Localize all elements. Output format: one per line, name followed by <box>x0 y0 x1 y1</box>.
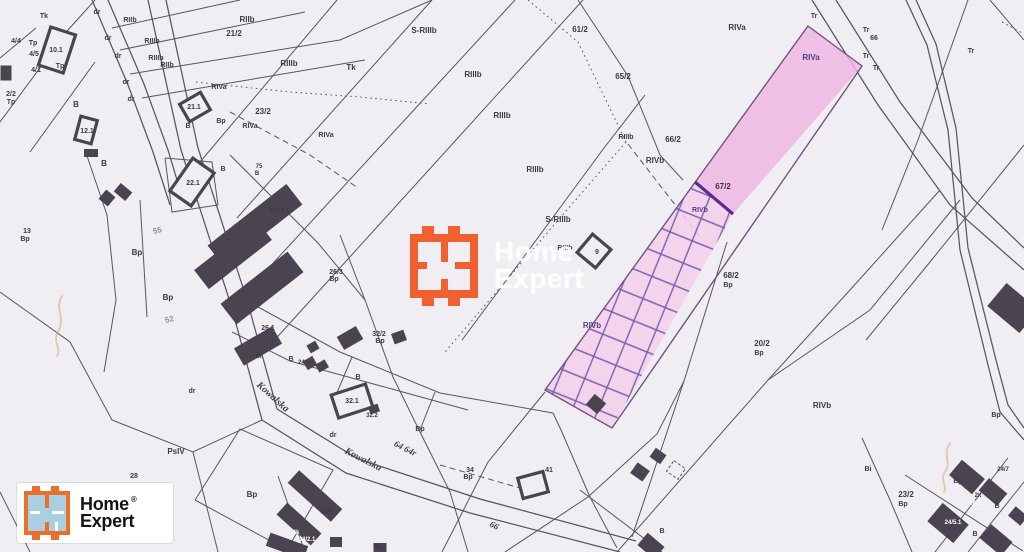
map-label: 24.4 <box>298 360 310 366</box>
logo-text: Home® Expert <box>80 496 136 530</box>
highlight-hatch <box>545 182 733 428</box>
map-label: 26.1 <box>261 325 275 332</box>
road-line <box>108 0 183 200</box>
map-label: 26/3 <box>329 269 343 276</box>
map-label: Bp <box>329 276 338 283</box>
map-label: 21.1 <box>187 104 201 111</box>
building <box>987 283 1024 333</box>
parcel-line <box>768 200 960 380</box>
icon-chimney <box>51 486 59 491</box>
map-label: 65/2 <box>615 72 631 81</box>
map-label: RIIIb <box>526 165 543 174</box>
map-label: dr <box>189 388 196 395</box>
street-name-label: 64 64r <box>393 438 419 458</box>
map-label: Tp <box>29 40 38 47</box>
map-label: 32.1 <box>345 398 359 405</box>
map-label: Tr <box>863 53 870 60</box>
map-label: 10.1 <box>49 47 63 54</box>
map-label: RIIb <box>239 15 254 24</box>
building <box>114 183 133 201</box>
home-plan-icon <box>24 491 70 535</box>
map-label: 4/4 <box>11 38 21 45</box>
map-label: RIIIb <box>148 55 163 62</box>
map-label: 4k <box>293 530 300 536</box>
icon-foot <box>51 535 59 540</box>
map-label: Bp <box>991 412 1000 419</box>
icon-foot <box>32 535 40 540</box>
road-line <box>812 0 1024 270</box>
building <box>577 234 611 268</box>
icon-wall <box>52 511 64 514</box>
map-label: dr <box>94 9 101 16</box>
map-label: 24/7 <box>997 467 1009 473</box>
map-label: S-RIIIb <box>545 215 570 224</box>
parcel-line <box>249 302 553 413</box>
map-label: 68/2 <box>723 271 739 280</box>
map-label: B <box>220 166 225 173</box>
parcel-line <box>440 465 520 488</box>
map-label: Bi <box>865 466 872 473</box>
map-label: 20/2 <box>754 339 770 348</box>
homeexpert-logo-card: Home® Expert <box>17 483 173 543</box>
map-label: 25/15.1 <box>269 208 290 214</box>
map-label: RIVa <box>242 123 257 130</box>
map-label: Bp <box>898 501 907 508</box>
building <box>630 462 650 481</box>
cadastral-map-screenshot: Tk4/4Tp4/510.1Tp4/12/2TpBB13BpBpdrdrdrdr… <box>0 0 1024 552</box>
map-label: RIVa <box>211 84 226 91</box>
map-label: RIIIb <box>144 38 159 45</box>
parcel-line <box>85 150 116 372</box>
map-label: 2/2 <box>6 91 16 98</box>
map-label: 2k <box>975 493 982 499</box>
building <box>306 341 319 354</box>
map-label: RIVb <box>692 207 708 214</box>
pencil-scribble <box>943 443 950 492</box>
map-label: Bp <box>163 293 174 302</box>
parcel-line <box>1002 22 1024 34</box>
map-label: RIVb <box>646 156 664 165</box>
map-label: Bp <box>132 248 143 257</box>
map-label: RIVb <box>813 401 831 410</box>
map-label: Bp <box>216 118 225 125</box>
map-label: 12.1 <box>80 128 94 135</box>
map-label: dr <box>115 53 122 60</box>
map-label: RIIIb <box>557 245 572 252</box>
map-label: Tr <box>863 27 870 34</box>
map-label: RIVa <box>318 132 333 139</box>
map-label: Tr <box>811 13 818 20</box>
map-label: 23/2 <box>898 490 914 499</box>
icon-wall <box>30 511 40 514</box>
map-label: Tr <box>873 65 880 72</box>
map-label: B <box>994 503 999 510</box>
map-label: dr <box>128 96 135 103</box>
map-label: 24/5.1 <box>945 520 962 526</box>
map-label: B <box>972 531 977 538</box>
building <box>84 149 98 157</box>
map-label: B <box>255 171 260 177</box>
map-label: 4/1 <box>31 67 41 74</box>
parcel-line <box>0 292 262 452</box>
map-label: B <box>659 528 664 535</box>
building <box>99 190 116 207</box>
map-label: 22.1 <box>186 180 200 187</box>
map-label: B <box>288 356 293 363</box>
map-label: 23/2 <box>255 107 271 116</box>
icon-wall <box>55 522 58 531</box>
logo-text-line2: Expert <box>80 513 136 530</box>
map-label: RIVa <box>728 23 746 32</box>
building <box>1008 506 1024 525</box>
icon-wall <box>45 495 49 508</box>
parcel-line <box>142 60 365 98</box>
building <box>650 448 667 464</box>
map-label: RIVa <box>802 53 820 62</box>
map-label: B <box>101 159 107 168</box>
map-label: Bp <box>20 236 29 243</box>
road-line <box>836 0 1024 248</box>
map-label: 34/2.1 <box>299 537 316 543</box>
map-label: B <box>185 123 190 130</box>
map-label: Bp <box>415 426 424 433</box>
map-label: 34 <box>466 467 474 474</box>
icon-chimney <box>32 486 40 491</box>
map-label: dr <box>256 353 263 360</box>
map-label: 32.2 <box>366 413 378 419</box>
cadastral-map: Tk4/4Tp4/510.1Tp4/12/2TpBB13BpBpdrdrdrdr… <box>0 0 1024 552</box>
map-label: Bp <box>953 478 962 485</box>
map-label: S-RIIIb <box>411 26 436 35</box>
map-label: Tk <box>346 63 356 72</box>
map-label: 52 <box>164 314 175 325</box>
map-label: 55 <box>152 225 163 236</box>
parcel-line <box>140 200 147 317</box>
map-label: Tp <box>7 99 16 106</box>
map-label: Bp <box>375 338 384 345</box>
map-label: 36 <box>373 544 381 551</box>
map-label: 13 <box>23 228 31 235</box>
street-name-label: Kowalska <box>342 445 384 473</box>
building <box>518 471 549 498</box>
map-label: dr <box>105 35 112 42</box>
map-label: dr <box>330 432 337 439</box>
building <box>391 330 407 345</box>
pencil-scribble <box>56 296 62 356</box>
building <box>979 524 1012 552</box>
registered-mark: ® <box>131 495 137 504</box>
building <box>1 66 12 81</box>
map-label: 34/1 <box>321 510 333 516</box>
parcel-line <box>578 0 683 180</box>
parcel-line <box>528 0 626 142</box>
map-label: RIIIb <box>280 59 297 68</box>
map-label: 32/2 <box>372 331 386 338</box>
map-label: B <box>73 100 79 109</box>
map-label: Bp <box>463 474 472 481</box>
map-label: 9 <box>595 249 599 256</box>
map-label: dr <box>123 79 130 86</box>
map-label: Tp <box>56 63 65 70</box>
map-label: 4/5 <box>29 51 39 58</box>
map-label: Tr <box>968 48 975 55</box>
map-label: RIIIb <box>493 111 510 120</box>
map-label: 66/2 <box>665 135 681 144</box>
icon-wall <box>45 522 49 531</box>
building <box>337 326 364 350</box>
building <box>330 537 342 547</box>
map-label: 28 <box>130 473 138 480</box>
parcel-line <box>193 452 218 552</box>
map-label: Bp <box>754 350 763 357</box>
map-label: B <box>355 374 360 381</box>
map-label: PsIV <box>167 447 185 456</box>
parcel-line <box>990 0 1024 40</box>
map-label: 21/2 <box>226 29 242 38</box>
map-label: Tk <box>40 13 48 20</box>
map-label: RIIIb <box>464 70 481 79</box>
map-label: 61/2 <box>572 25 588 34</box>
map-label: 41 <box>545 467 553 474</box>
map-label: 67/2 <box>715 182 731 191</box>
map-label: RIIb <box>123 17 136 24</box>
parcel-line <box>196 82 430 104</box>
building <box>949 460 985 495</box>
map-label: RIIb <box>160 62 173 69</box>
map-label: 16.1 <box>969 501 981 507</box>
map-label: Bp <box>723 282 732 289</box>
map-label: 66 <box>870 35 878 42</box>
parcel-line <box>200 0 337 162</box>
map-label: Bp <box>247 490 258 499</box>
map-label: 75 <box>256 164 263 170</box>
map-label: RIVb <box>583 321 601 330</box>
building <box>637 533 664 552</box>
map-label: RIIIb <box>618 134 633 141</box>
building <box>979 478 1008 506</box>
